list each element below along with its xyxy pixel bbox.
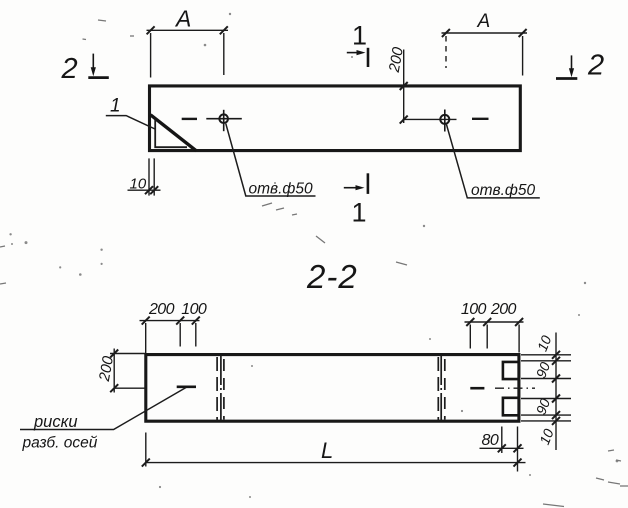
- svg-text:100: 100: [461, 301, 487, 318]
- svg-text:1: 1: [110, 96, 121, 117]
- svg-text:риски: риски: [33, 413, 78, 431]
- svg-text:отв.ф50: отв.ф50: [249, 181, 313, 198]
- svg-text:200: 200: [490, 301, 517, 318]
- svg-text:отв.ф50: отв.ф50: [471, 182, 535, 199]
- svg-text:A: A: [174, 6, 191, 32]
- svg-text:10: 10: [534, 333, 555, 354]
- svg-text:10: 10: [130, 176, 147, 193]
- svg-text:90: 90: [533, 360, 554, 381]
- svg-text:L: L: [321, 438, 333, 463]
- svg-text:1: 1: [352, 198, 367, 228]
- svg-text:80: 80: [482, 432, 499, 449]
- svg-text:разб. осей: разб. осей: [22, 435, 98, 452]
- svg-text:A: A: [477, 11, 491, 32]
- svg-text:2: 2: [61, 53, 78, 85]
- svg-text:2-2: 2-2: [306, 258, 358, 295]
- svg-text:10: 10: [536, 426, 557, 447]
- svg-text:1: 1: [352, 21, 367, 51]
- svg-text:2: 2: [587, 50, 604, 82]
- svg-text:100: 100: [181, 301, 207, 318]
- svg-text:200: 200: [148, 301, 175, 318]
